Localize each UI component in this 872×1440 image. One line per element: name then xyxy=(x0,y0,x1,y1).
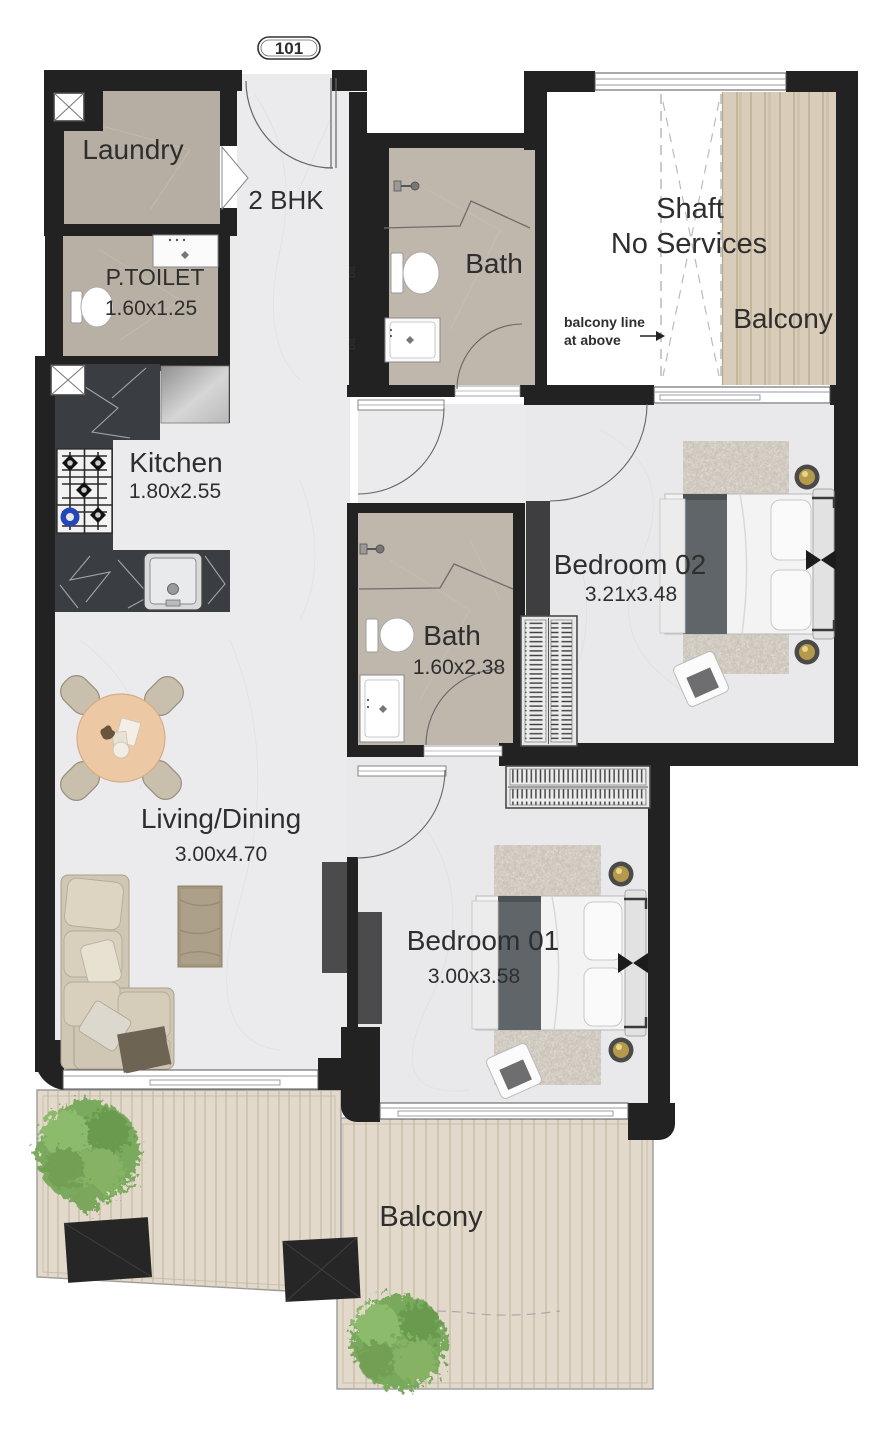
svg-text:Shaft: Shaft xyxy=(656,193,724,225)
svg-text:Bedroom 01: Bedroom 01 xyxy=(407,925,560,956)
svg-text:No Services: No Services xyxy=(611,228,767,260)
svg-text:DB: DB xyxy=(348,338,357,350)
svg-text:Bath: Bath xyxy=(465,248,523,279)
svg-text:DB: DB xyxy=(348,266,357,278)
svg-text:1.60x1.25: 1.60x1.25 xyxy=(105,297,197,320)
svg-text:1.60x2.38: 1.60x2.38 xyxy=(413,656,505,679)
svg-text:Bath: Bath xyxy=(423,620,481,651)
svg-text:3.21x3.48: 3.21x3.48 xyxy=(585,583,677,606)
svg-text:Bedroom 02: Bedroom 02 xyxy=(554,549,707,580)
svg-text:at above: at above xyxy=(564,332,621,348)
svg-text:balcony line: balcony line xyxy=(564,314,645,330)
svg-text:2 BHK: 2 BHK xyxy=(248,185,324,215)
svg-text:101: 101 xyxy=(275,39,303,58)
svg-text:Laundry: Laundry xyxy=(82,134,183,165)
svg-text:1.80x2.55: 1.80x2.55 xyxy=(129,480,221,503)
svg-text:Balcony: Balcony xyxy=(379,1201,483,1233)
svg-text:3.00x3.58: 3.00x3.58 xyxy=(428,965,520,988)
svg-text:P.TOILET: P.TOILET xyxy=(106,264,205,290)
svg-text:Kitchen: Kitchen xyxy=(129,447,222,478)
svg-text:Balcony: Balcony xyxy=(733,303,833,334)
svg-text:Living/Dining: Living/Dining xyxy=(141,803,301,834)
svg-text:3.00x4.70: 3.00x4.70 xyxy=(175,843,267,866)
